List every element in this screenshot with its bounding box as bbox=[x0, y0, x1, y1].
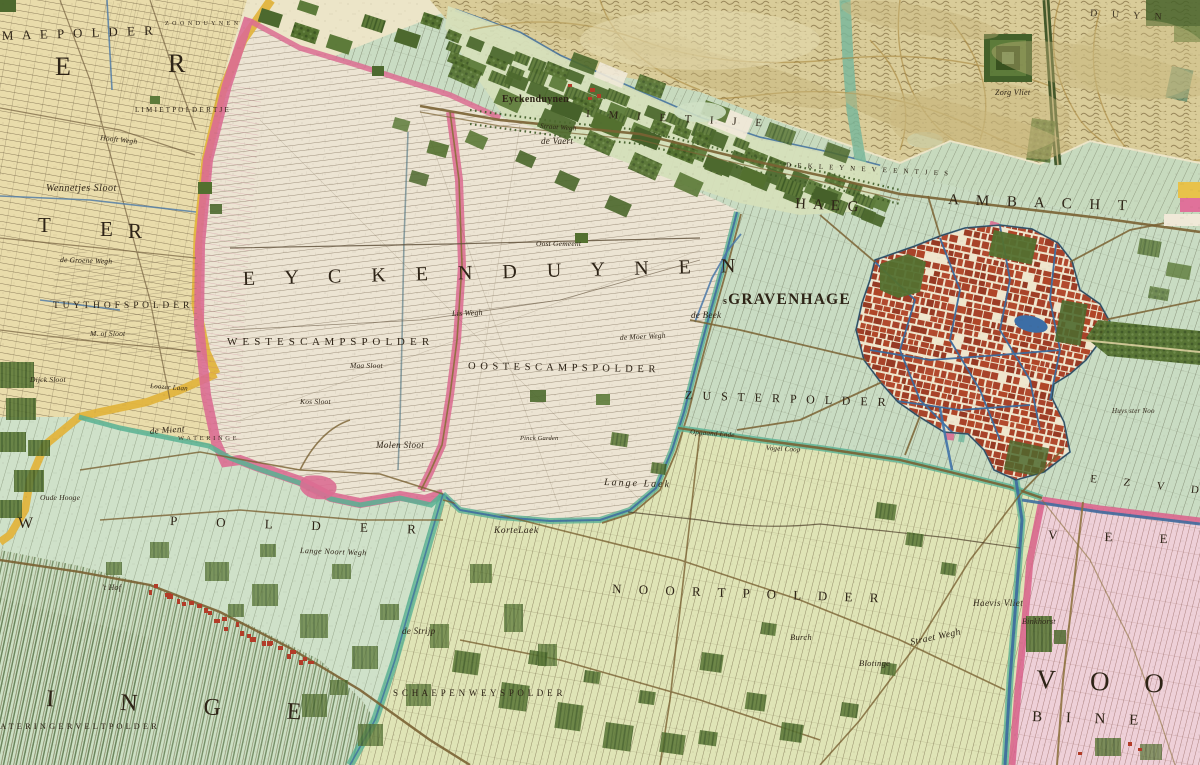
svg-text:'t Hof: 't Hof bbox=[102, 583, 123, 592]
svg-text:Z O O N D U Y N E N: Z O O N D U Y N E N bbox=[165, 21, 239, 27]
svg-text:V O O: V O O bbox=[1036, 664, 1178, 699]
svg-text:W: W bbox=[18, 515, 34, 532]
svg-text:T U Y T H O F S P O L D E R: T U Y T H O F S P O L D E R bbox=[53, 301, 190, 311]
svg-text:A T E R I N G E R V E L T P O: A T E R I N G E R V E L T P O L D E R bbox=[0, 721, 157, 731]
svg-text:sGRAVENHAGE: sGRAVENHAGE bbox=[723, 291, 851, 308]
svg-text:Dijck Sloot: Dijck Sloot bbox=[29, 375, 66, 384]
svg-text:Eyckenduynen: Eyckenduynen bbox=[502, 94, 569, 105]
svg-text:Oost Gemeent: Oost Gemeent bbox=[536, 239, 582, 248]
svg-text:W E S T E S C A M P S P O: W E S T E S C A M P S P O L D E R bbox=[227, 336, 430, 348]
svg-text:Huys ster Noo: Huys ster Noo bbox=[1111, 407, 1155, 415]
svg-text:Blotinge: Blotinge bbox=[859, 658, 890, 668]
svg-text:M. of Sloot: M. of Sloot bbox=[89, 329, 126, 338]
svg-text:KorteLaek: KorteLaek bbox=[493, 526, 539, 536]
svg-text:H A E G: H A E G bbox=[795, 196, 861, 215]
svg-text:R: R bbox=[128, 219, 142, 243]
svg-text:Kos Sloot: Kos Sloot bbox=[299, 397, 331, 406]
svg-text:Molen Sloot: Molen Sloot bbox=[375, 440, 424, 450]
svg-text:S C H A E P E N W E Y S P O L: S C H A E P E N W E Y S P O L D E R bbox=[393, 688, 563, 698]
svg-text:Maa Sloot: Maa Sloot bbox=[349, 361, 384, 370]
svg-text:de Groene Wegh: de Groene Wegh bbox=[60, 255, 113, 266]
svg-text:Wennetjes Sloot: Wennetjes Sloot bbox=[46, 183, 117, 194]
svg-text:W A T E R I N G E: W A T E R I N G E bbox=[178, 435, 237, 442]
svg-text:Haevis Vliet: Haevis Vliet bbox=[972, 598, 1023, 608]
svg-text:R: R bbox=[168, 49, 186, 78]
svg-text:de Strijp: de Strijp bbox=[402, 626, 436, 636]
svg-text:Pinck Garden: Pinck Garden bbox=[519, 435, 558, 442]
svg-text:Lis Wegh: Lis Wegh bbox=[451, 308, 483, 318]
svg-text:de Vaert: de Vaert bbox=[541, 136, 573, 146]
svg-text:T: T bbox=[38, 213, 51, 237]
svg-text:L I M I E T P O L D E R T J E: L I M I E T P O L D E R T J E bbox=[135, 106, 229, 114]
svg-text:E: E bbox=[55, 52, 71, 81]
svg-text:E: E bbox=[100, 217, 113, 241]
svg-text:Binkhorst: Binkhorst bbox=[1022, 617, 1056, 626]
svg-text:Burch: Burch bbox=[790, 632, 812, 642]
svg-text:Zorg Vliet: Zorg Vliet bbox=[995, 88, 1031, 97]
svg-text:de Beek: de Beek bbox=[691, 310, 722, 320]
svg-text:Oude Hooge: Oude Hooge bbox=[40, 493, 81, 502]
